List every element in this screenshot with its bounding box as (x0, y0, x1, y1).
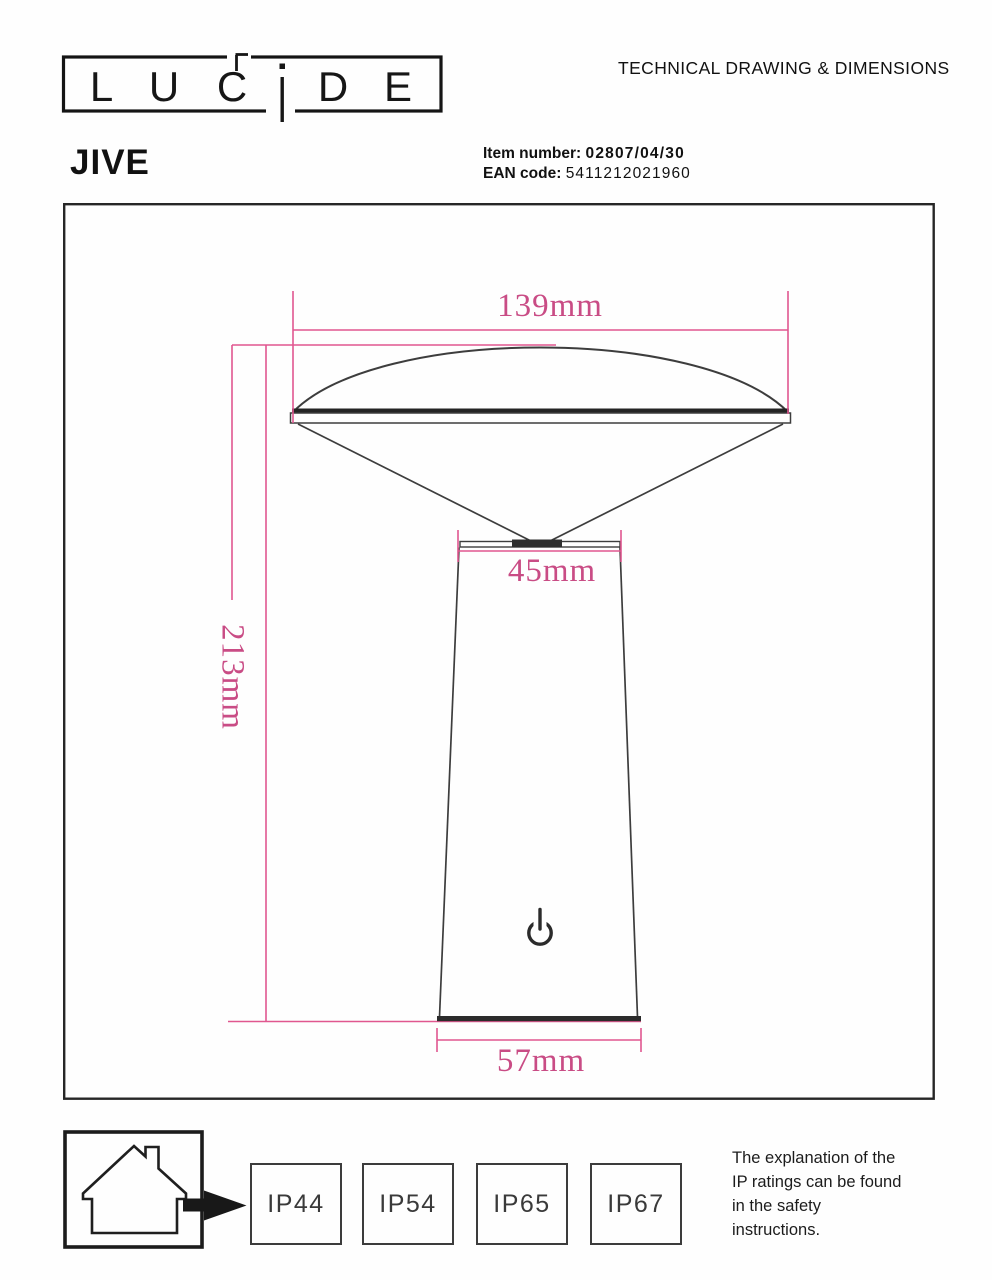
lucide-logo: L U C D E (60, 48, 455, 128)
ip44-label: IP44 (267, 1190, 324, 1219)
logo-letter-u: U (149, 63, 179, 110)
logo-letter-d: D (318, 63, 348, 110)
logo-letters: L U C D E (90, 63, 412, 110)
ip-note-line: instructions. (732, 1218, 901, 1242)
indoor-use-pictogram (60, 1128, 260, 1258)
ip-rating-box-ip44: IP44 (250, 1163, 342, 1245)
technical-drawing-sheet: L U C D E TECHNICAL DRAWING & DIMENSIONS… (0, 0, 992, 1280)
ip-note: The explanation of the IP ratings can be… (732, 1146, 901, 1242)
item-number-value: 02807/04/30 (586, 145, 685, 162)
lamp-body (440, 548, 638, 1018)
ip-note-line: in the safety (732, 1194, 901, 1218)
item-number-label: Item number: (483, 145, 581, 162)
dim-neck-width-label: 45mm (508, 553, 596, 589)
ip65-label: IP65 (493, 1190, 550, 1219)
document-title: TECHNICAL DRAWING & DIMENSIONS (618, 58, 950, 79)
lamp-shade (291, 348, 791, 424)
dim-base-width-label: 57mm (497, 1043, 585, 1079)
product-name: JIVE (70, 143, 150, 183)
lamp-cone (298, 424, 783, 541)
ip-note-line: The explanation of the (732, 1146, 901, 1170)
dim-shade-width-label: 139mm (497, 288, 603, 324)
dimension-drawing: 139mm 213mm 45mm 57mm (63, 203, 935, 1100)
product-codes: Item number: 02807/04/30 EAN code: 54112… (483, 144, 691, 183)
lamp-neck (460, 540, 620, 548)
ean-label: EAN code: (483, 165, 561, 182)
item-number-row: Item number: 02807/04/30 (483, 144, 691, 164)
logo-letter-l: L (90, 63, 113, 110)
ean-value: 5411212021960 (566, 165, 691, 182)
ip-rating-box-ip67: IP67 (590, 1163, 682, 1245)
ip-rating-box-ip65: IP65 (476, 1163, 568, 1245)
logo-letter-e: E (384, 63, 412, 110)
dim-total-height (232, 345, 556, 1021)
ip-rating-box-ip54: IP54 (362, 1163, 454, 1245)
ip-note-line: IP ratings can be found (732, 1170, 901, 1194)
logo-letter-c: C (217, 63, 247, 110)
lamp-base (437, 1016, 641, 1021)
ip54-label: IP54 (379, 1190, 436, 1219)
drawing-border (64, 204, 934, 1098)
ip67-label: IP67 (607, 1190, 664, 1219)
ean-row: EAN code: 5411212021960 (483, 164, 691, 184)
power-icon (529, 910, 551, 945)
dim-total-height-label: 213mm (215, 624, 251, 730)
